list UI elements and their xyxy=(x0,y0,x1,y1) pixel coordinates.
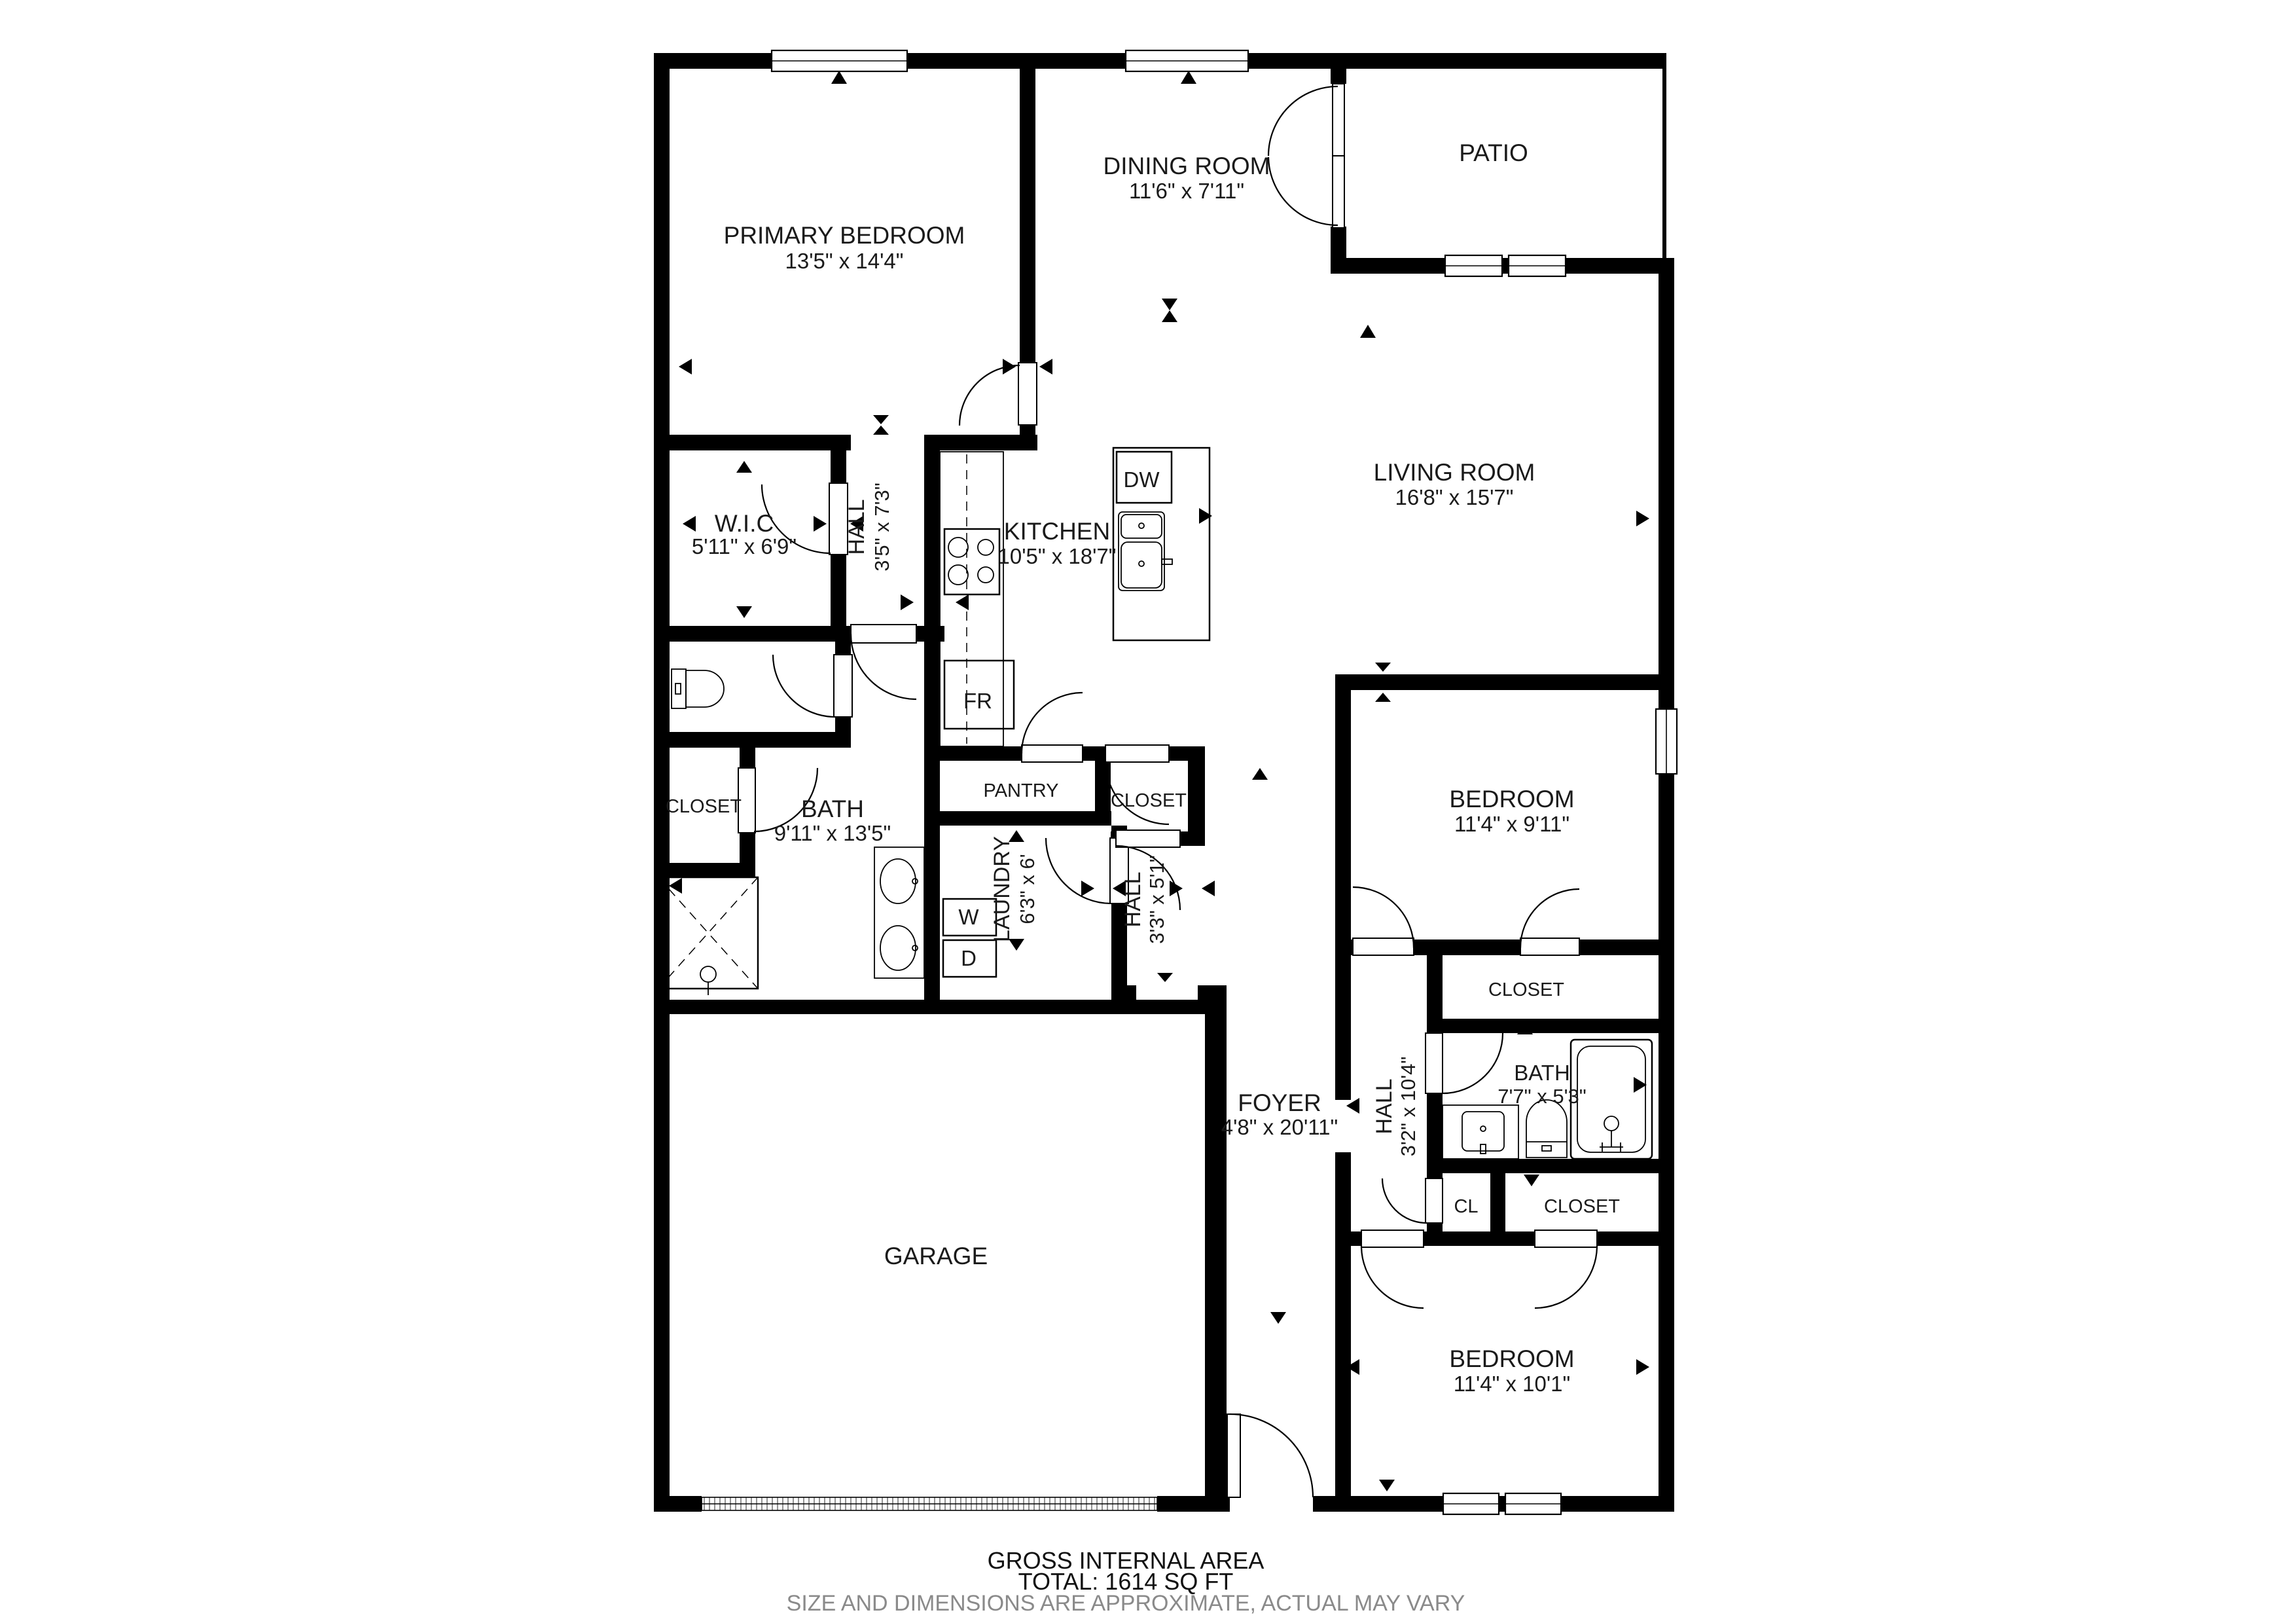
dims-bedroom-bottom: 11'4" x 10'1" xyxy=(1454,1372,1571,1396)
toilet-icon xyxy=(672,669,724,708)
label-dryer: D xyxy=(961,946,977,970)
window-icon xyxy=(772,50,907,71)
label-washer: W xyxy=(958,905,979,929)
footer-disclaimer: SIZE AND DIMENSIONS ARE APPROXIMATE, ACT… xyxy=(787,1591,1465,1616)
label-hall-bedrooms: HALL 3'2" x 10'4" xyxy=(1372,1057,1420,1157)
svg-text:LAUNDRY: LAUNDRY xyxy=(990,836,1014,942)
door-bedroom-top-closet xyxy=(1520,889,1579,955)
door-front-entry xyxy=(1227,1414,1313,1497)
label-pantry: PANTRY xyxy=(984,780,1059,801)
window-icon xyxy=(1505,1493,1561,1514)
label-living-room: LIVING ROOM xyxy=(1374,459,1535,486)
svg-text:3'3" x 5'1": 3'3" x 5'1" xyxy=(1145,855,1168,944)
door-bath-shared xyxy=(1426,1033,1503,1093)
door-pantry xyxy=(1022,693,1083,762)
garage-door-icon xyxy=(702,1497,1157,1510)
door-kitchen-to-hall xyxy=(1105,745,1169,824)
door-hall-to-bath xyxy=(851,625,916,699)
dims-dining-room: 11'6" x 7'11" xyxy=(1129,179,1244,203)
label-dishwasher: DW xyxy=(1124,467,1160,492)
dims-kitchen: 10'5" x 18'7" xyxy=(998,544,1117,568)
label-dining-room: DINING ROOM xyxy=(1103,153,1270,179)
label-hall-primary: HALL 3'5" x 7'3" xyxy=(844,483,893,572)
window-icon xyxy=(1445,255,1502,276)
label-primary-bedroom: PRIMARY BEDROOM xyxy=(724,222,965,249)
svg-text:3'5" x 7'3": 3'5" x 7'3" xyxy=(870,483,893,572)
dims-bath-shared: 7'7" x 5'3" xyxy=(1498,1085,1587,1108)
svg-text:6'3" x 6': 6'3" x 6' xyxy=(1016,854,1039,924)
svg-text:HALL: HALL xyxy=(1372,1078,1397,1134)
vanity-icon xyxy=(1443,1105,1518,1159)
window-icon xyxy=(1126,50,1248,71)
dims-wic: 5'11" x 6'9" xyxy=(692,534,797,558)
label-closet-cl: CL xyxy=(1454,1196,1478,1217)
svg-text:3'2" x 10'4": 3'2" x 10'4" xyxy=(1397,1057,1420,1157)
label-garage: GARAGE xyxy=(884,1243,988,1269)
door-closet-cl xyxy=(1382,1178,1443,1223)
toilet-icon xyxy=(1526,1100,1567,1158)
door-bedroom-bottom-hall xyxy=(1361,1230,1424,1308)
label-kitchen: KITCHEN xyxy=(1004,518,1110,545)
double-vanity-icon xyxy=(874,847,924,978)
label-closet-top: CLOSET xyxy=(1488,979,1564,1000)
door-bedroom-bottom-closet xyxy=(1535,1230,1597,1308)
svg-text:HALL: HALL xyxy=(844,499,869,555)
label-wic: W.I.C xyxy=(715,510,774,537)
svg-text:HALL: HALL xyxy=(1121,871,1145,927)
label-closet-hall: CLOSET xyxy=(1111,790,1187,811)
floor-plan: PRIMARY BEDROOM 13'5" x 14'4" DINING ROO… xyxy=(0,0,2296,1623)
window-icon xyxy=(1443,1493,1499,1514)
label-laundry: LAUNDRY 6'3" x 6' xyxy=(990,836,1039,942)
door-patio-double xyxy=(1268,84,1344,228)
dims-foyer: 4'8" x 20'11" xyxy=(1221,1115,1338,1139)
door-bedroom-top-hall xyxy=(1353,887,1414,955)
footer: GROSS INTERNAL AREA TOTAL: 1614 SQ FT SI… xyxy=(787,1547,1465,1616)
dims-living-room: 16'8" x 15'7" xyxy=(1395,485,1514,509)
room-labels: PRIMARY BEDROOM 13'5" x 14'4" DINING ROO… xyxy=(666,139,1620,1396)
label-closet-primary: CLOSET xyxy=(666,796,742,817)
label-closet-bottom: CLOSET xyxy=(1544,1196,1620,1217)
sink-icon xyxy=(1119,512,1172,591)
label-bath-primary: BATH xyxy=(801,795,864,822)
door-primary-bedroom xyxy=(960,363,1037,426)
door-toilet-room xyxy=(773,655,852,717)
dims-bath-primary: 9'11" x 13'5" xyxy=(774,821,891,845)
stove-icon xyxy=(944,529,999,594)
label-bedroom-top: BEDROOM xyxy=(1449,786,1574,812)
label-bedroom-bottom: BEDROOM xyxy=(1449,1345,1574,1372)
dims-bedroom-top: 11'4" x 9'11" xyxy=(1454,812,1570,836)
dims-primary-bedroom: 13'5" x 14'4" xyxy=(785,249,904,273)
label-patio: PATIO xyxy=(1459,139,1528,166)
shower-icon xyxy=(658,877,758,995)
label-foyer: FOYER xyxy=(1238,1089,1321,1116)
label-fridge: FR xyxy=(963,689,992,713)
window-icon xyxy=(1509,255,1566,276)
window-icon xyxy=(1656,709,1677,774)
label-bath-shared: BATH xyxy=(1514,1061,1570,1085)
